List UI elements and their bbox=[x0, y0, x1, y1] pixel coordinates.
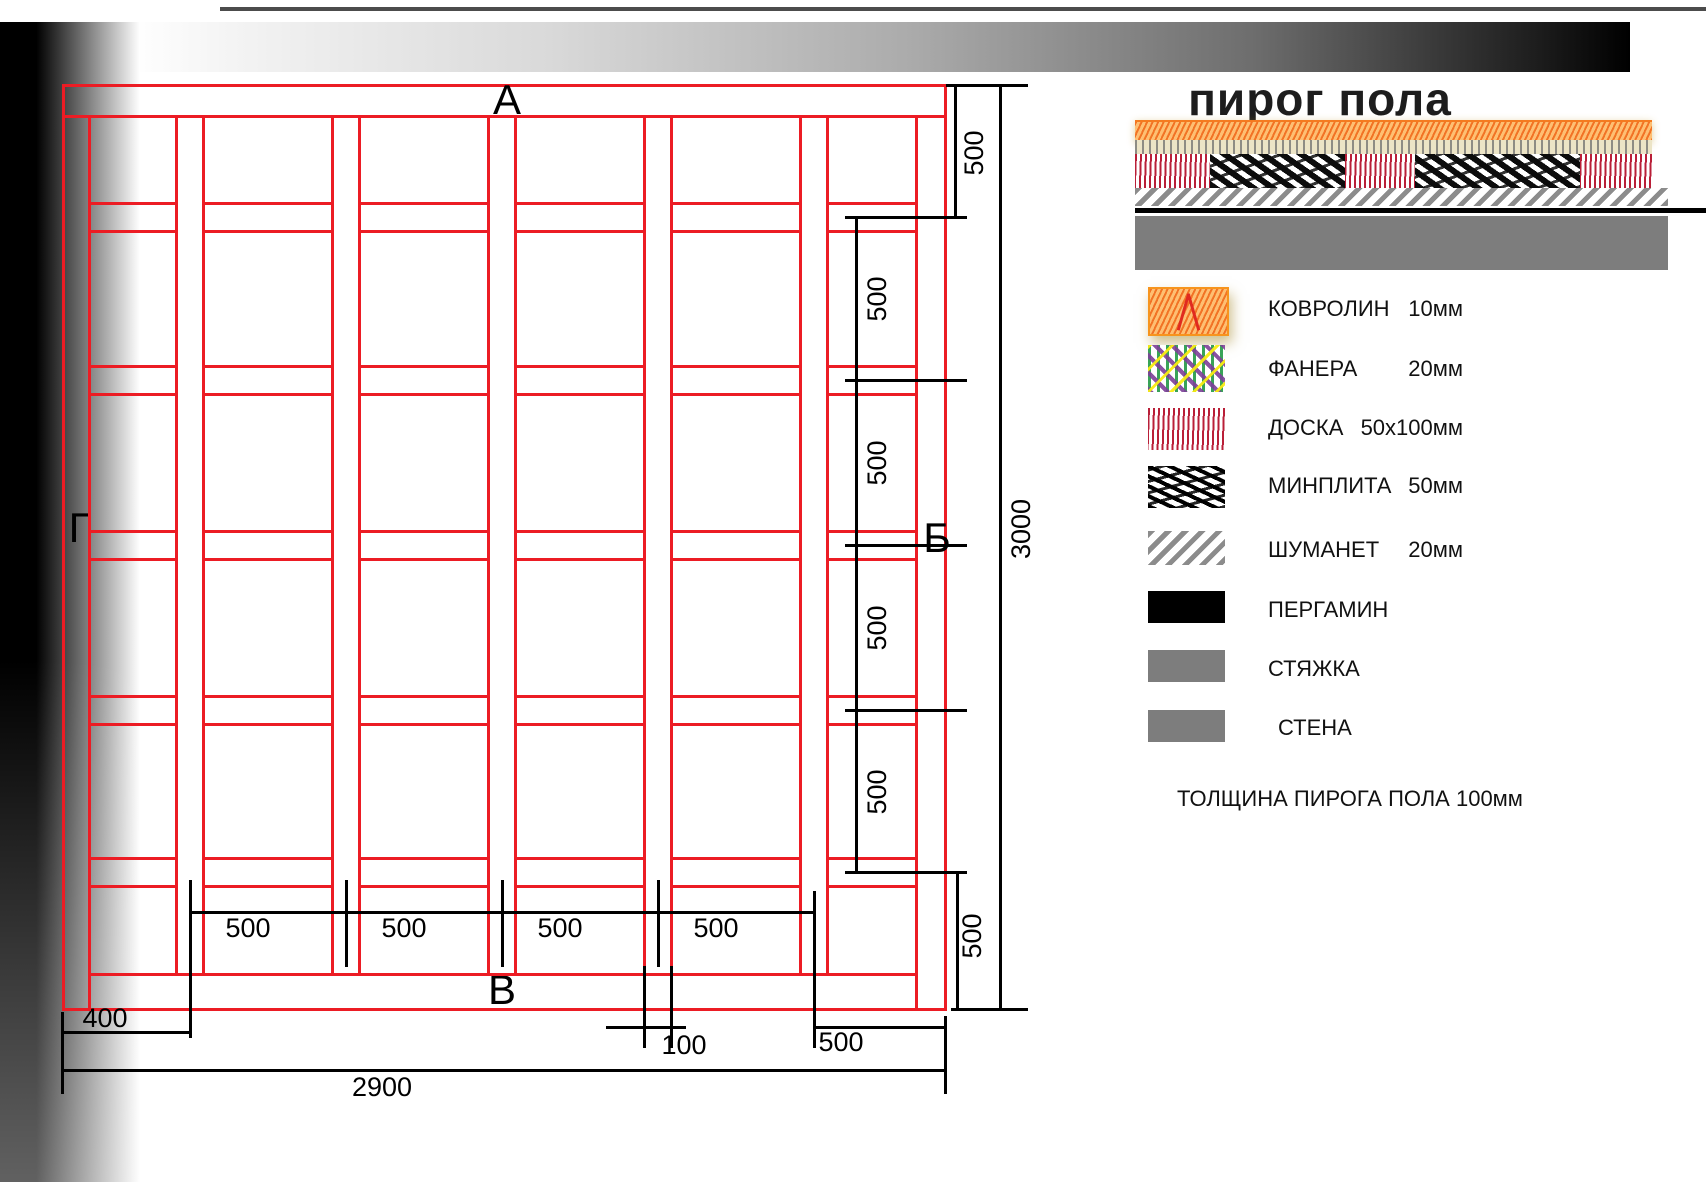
plan-line bbox=[673, 695, 799, 698]
plan-line bbox=[829, 885, 915, 888]
legend-swatch-carpet bbox=[1148, 287, 1229, 336]
plan-line bbox=[829, 393, 915, 396]
layer-plywood bbox=[1135, 140, 1652, 154]
plan-line bbox=[826, 118, 829, 973]
legend-row-screed: СТЯЖКА bbox=[1268, 656, 1463, 682]
dimension-line bbox=[999, 84, 1002, 1011]
dimension-line bbox=[657, 880, 660, 967]
legend-item-name: СТЕНА bbox=[1278, 715, 1352, 741]
dimension-line bbox=[946, 84, 1028, 87]
plan-line bbox=[361, 885, 487, 888]
legend-swatch-plywood bbox=[1148, 345, 1225, 392]
legend-item-name: СТЯЖКА bbox=[1268, 656, 1360, 682]
dimension-line bbox=[61, 1012, 64, 1094]
dimension-line bbox=[643, 966, 646, 1048]
plan-line bbox=[517, 857, 643, 860]
dim-label-right-chain-500: 500 bbox=[862, 588, 892, 668]
plan-line bbox=[673, 393, 799, 396]
legend-swatch-shumanet bbox=[1148, 531, 1225, 565]
plan-line bbox=[205, 530, 331, 533]
dimension-line bbox=[845, 216, 967, 219]
dimension-line bbox=[62, 1069, 947, 1072]
plan-line bbox=[673, 885, 799, 888]
dim-label-right-chain-500: 500 bbox=[862, 259, 892, 339]
plan-line bbox=[331, 118, 334, 973]
plan-outline bbox=[62, 84, 947, 1011]
legend-item-size: 50х100мм bbox=[1361, 415, 1463, 441]
legend-swatch-screed bbox=[1148, 650, 1225, 682]
drawing-canvas: А Б В Г 500 500 500 500 500 500 3000 500… bbox=[0, 0, 1706, 1182]
plan-line bbox=[799, 118, 802, 973]
dim-label-right-chain-500: 500 bbox=[862, 423, 892, 503]
plan-line bbox=[358, 118, 361, 973]
plan-line bbox=[673, 530, 799, 533]
plan-line bbox=[361, 723, 487, 726]
dim-label-width-2900: 2900 bbox=[342, 1072, 422, 1102]
dim-label-joist-100: 100 bbox=[644, 1030, 724, 1060]
dim-label-bottom-500: 500 bbox=[676, 913, 756, 943]
dimension-line bbox=[189, 880, 192, 1038]
dimension-line bbox=[845, 379, 967, 382]
floor-layers-cross-section bbox=[1135, 120, 1706, 270]
layer-shumanet bbox=[1135, 188, 1668, 206]
plan-line bbox=[487, 118, 490, 973]
legend-item-size: 20мм bbox=[1408, 537, 1463, 563]
legend-row-wall: СТЕНА bbox=[1268, 715, 1463, 741]
board-block bbox=[1580, 154, 1652, 188]
plan-line bbox=[673, 202, 799, 205]
plan-line bbox=[205, 695, 331, 698]
plan-line bbox=[517, 530, 643, 533]
plan-line bbox=[673, 558, 799, 561]
dimension-line bbox=[951, 1008, 1028, 1011]
plan-line bbox=[205, 885, 331, 888]
mineral-block bbox=[1415, 154, 1580, 188]
dimension-line bbox=[345, 880, 348, 967]
plan-line bbox=[361, 230, 487, 233]
plan-line bbox=[829, 857, 915, 860]
plan-line bbox=[829, 365, 915, 368]
legend-title: пирог пола bbox=[1120, 72, 1520, 126]
dim-label-bottom-500: 500 bbox=[364, 913, 444, 943]
dimension-line bbox=[813, 891, 816, 1048]
plan-line bbox=[205, 393, 331, 396]
dimension-line bbox=[845, 709, 967, 712]
plan-line bbox=[361, 202, 487, 205]
axis-label-right: Б bbox=[897, 516, 977, 560]
board-block bbox=[1135, 154, 1210, 188]
plan-line bbox=[361, 857, 487, 860]
plan-line bbox=[517, 723, 643, 726]
plan-line bbox=[829, 202, 915, 205]
axis-label-left: Г bbox=[40, 506, 120, 550]
dim-label-offset-400: 400 bbox=[65, 1003, 145, 1033]
plan-line bbox=[91, 202, 175, 205]
plan-line bbox=[91, 393, 175, 396]
dimension-line bbox=[606, 1026, 686, 1029]
plan-line bbox=[517, 885, 643, 888]
dim-label-bottom-500: 500 bbox=[208, 913, 288, 943]
plan-line bbox=[205, 230, 331, 233]
plan-line bbox=[673, 365, 799, 368]
plan-line bbox=[205, 558, 331, 561]
legend-row-shumanet: ШУМАНЕТ 20мм bbox=[1268, 537, 1463, 563]
plan-line bbox=[91, 530, 175, 533]
plan-line bbox=[202, 118, 205, 973]
plan-line bbox=[91, 695, 175, 698]
legend-swatch-board bbox=[1148, 408, 1225, 450]
plan-line bbox=[517, 230, 643, 233]
plan-line bbox=[361, 558, 487, 561]
plan-line bbox=[175, 118, 178, 973]
dim-label-right-bottom-500: 500 bbox=[957, 896, 987, 976]
plan-line bbox=[829, 558, 915, 561]
plan-line bbox=[829, 723, 915, 726]
legend-row-pergamin: ПЕРГАМИН bbox=[1268, 597, 1463, 623]
legend-note: ТОЛЩИНА ПИРОГА ПОЛА 100мм bbox=[1140, 786, 1560, 812]
plan-line bbox=[514, 118, 517, 973]
plan-line bbox=[91, 230, 175, 233]
legend-item-size: 50мм bbox=[1408, 473, 1463, 499]
dim-label-right-chain-500: 500 bbox=[862, 752, 892, 832]
plan-line bbox=[829, 695, 915, 698]
plan-line bbox=[517, 695, 643, 698]
plan-line bbox=[62, 115, 947, 118]
plan-line bbox=[673, 230, 799, 233]
dim-label-right-top-500: 500 bbox=[959, 113, 989, 193]
plan-line bbox=[673, 723, 799, 726]
legend-item-name: ПЕРГАМИН bbox=[1268, 597, 1388, 623]
dimension-line bbox=[956, 871, 959, 1011]
plan-line bbox=[517, 558, 643, 561]
plan-line bbox=[205, 202, 331, 205]
legend-swatch-wall bbox=[1148, 710, 1225, 742]
legend-row-board: ДОСКА 50х100мм bbox=[1268, 415, 1463, 441]
dimension-line bbox=[954, 84, 957, 219]
legend-item-name: ДОСКА bbox=[1268, 415, 1343, 441]
dimension-line bbox=[189, 911, 816, 914]
dimension-line bbox=[845, 871, 967, 874]
layer-carpet bbox=[1135, 120, 1652, 142]
legend-item-name: МИНПЛИТА bbox=[1268, 473, 1391, 499]
mineral-block bbox=[1210, 154, 1345, 188]
dimension-line bbox=[62, 1031, 192, 1034]
board-block bbox=[1345, 154, 1415, 188]
legend-row-plywood: ФАНЕРА 20мм bbox=[1268, 356, 1463, 382]
plan-line bbox=[361, 365, 487, 368]
plan-line bbox=[829, 230, 915, 233]
dimension-line bbox=[501, 880, 504, 967]
legend-item-size: 20мм bbox=[1408, 356, 1463, 382]
plan-line bbox=[517, 202, 643, 205]
legend-item-name: ФАНЕРА bbox=[1268, 356, 1357, 382]
legend-row-carpet: КОВРОЛИН 10мм bbox=[1268, 296, 1463, 322]
plan-line bbox=[673, 857, 799, 860]
layer-pergamin bbox=[1135, 208, 1706, 213]
plan-line bbox=[205, 857, 331, 860]
plan-line bbox=[361, 393, 487, 396]
dimension-line bbox=[845, 544, 967, 547]
legend-item-name: КОВРОЛИН bbox=[1268, 296, 1390, 322]
legend-swatch-mineral bbox=[1148, 466, 1225, 508]
plan-line bbox=[670, 118, 673, 973]
plan-line bbox=[88, 118, 91, 1011]
dimension-line bbox=[813, 1026, 947, 1029]
plan-line bbox=[643, 118, 646, 973]
plan-line bbox=[517, 365, 643, 368]
plan-line bbox=[91, 857, 175, 860]
legend-item-name: ШУМАНЕТ bbox=[1268, 537, 1379, 563]
legend-swatch-pergamin bbox=[1148, 591, 1225, 623]
plan-line bbox=[361, 695, 487, 698]
layer-boards-and-mineral bbox=[1135, 154, 1652, 188]
dimension-line bbox=[670, 966, 673, 1048]
plan-line bbox=[91, 723, 175, 726]
layer-screed bbox=[1135, 216, 1668, 270]
plan-line bbox=[91, 885, 175, 888]
plan-line bbox=[91, 973, 915, 976]
plan-line bbox=[517, 393, 643, 396]
dim-label-height-3000: 3000 bbox=[1006, 489, 1036, 569]
plan-line bbox=[829, 530, 915, 533]
legend-row-mineral: МИНПЛИТА 50мм bbox=[1268, 473, 1463, 499]
legend-item-size: 10мм bbox=[1408, 296, 1463, 322]
plan-line bbox=[361, 530, 487, 533]
plan-line bbox=[915, 118, 918, 1011]
dim-label-bottom-500: 500 bbox=[520, 913, 600, 943]
plan-line bbox=[91, 558, 175, 561]
plan-line bbox=[91, 365, 175, 368]
plan-line bbox=[205, 723, 331, 726]
plan-line bbox=[205, 365, 331, 368]
